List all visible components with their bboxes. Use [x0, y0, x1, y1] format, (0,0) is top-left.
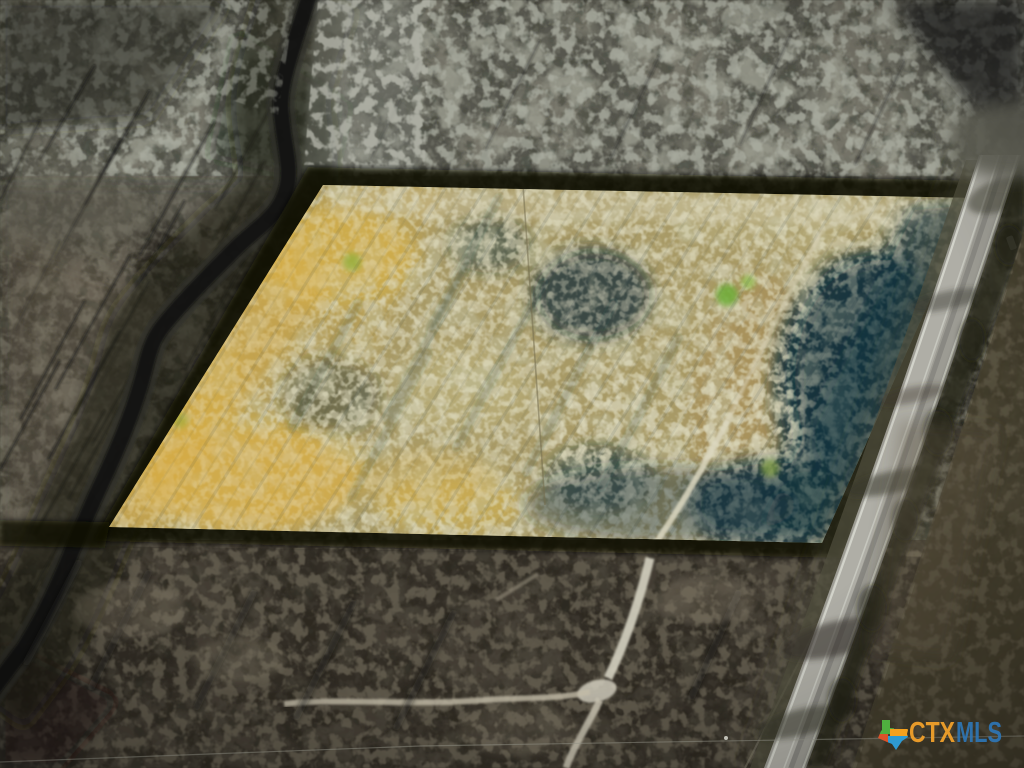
svg-text:MLS: MLS	[956, 717, 1002, 749]
svg-text:CTX: CTX	[909, 717, 956, 749]
